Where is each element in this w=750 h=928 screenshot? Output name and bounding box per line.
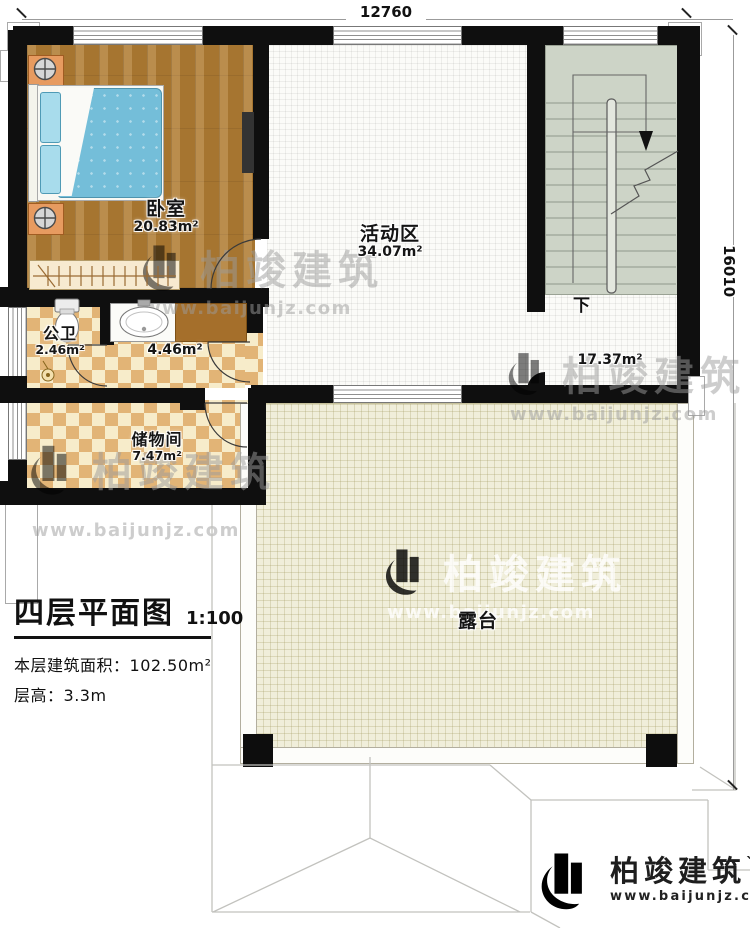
dimension-value-top: 12760 (346, 3, 426, 21)
room-label-storage: 储物间7.47m² (117, 431, 197, 463)
plan-title: 四层平面图 (14, 588, 174, 632)
terrace-parapet-bottom (240, 747, 694, 764)
brand-name: 柏竣建筑` (610, 856, 750, 886)
room-label-bath: 公卫2.46m² (20, 325, 100, 357)
brand-logo: 柏竣建筑` www.baijunjz.com (538, 848, 750, 912)
wall (8, 30, 27, 307)
room-label-bedroom: 卧室20.83m² (106, 199, 226, 236)
window (333, 26, 462, 45)
terrace-sliding-door (333, 385, 462, 403)
title-block: 四层平面图 1:100 本层建筑面积：102.50m² 层高：3.3m (14, 588, 243, 706)
plan-scale: 1:100 (186, 608, 243, 632)
tv (242, 112, 254, 173)
nightstand (28, 203, 64, 235)
dimension-line-right (733, 35, 734, 790)
vanity-counter (110, 303, 177, 342)
window (8, 397, 27, 460)
wall (462, 385, 700, 403)
dimension-value-right: 16010 (720, 245, 738, 297)
terrace-pillar-left (243, 734, 273, 767)
wall-pier (180, 388, 205, 410)
stairwell-floor (545, 45, 679, 295)
counter (175, 303, 247, 342)
title-underline (14, 636, 211, 639)
terrace-pillar-right (646, 734, 677, 767)
dimension-tick (681, 8, 692, 19)
stair-down-label: 下 (573, 291, 590, 316)
floor-plan-canvas: 卧室20.83m² 活动区34.07m² 公卫2.46m² 4.46m² 储物间… (0, 0, 750, 928)
dimension-tick (16, 8, 27, 19)
terrace-floor (255, 403, 679, 750)
window (563, 26, 658, 45)
pillow (40, 92, 61, 143)
wall (677, 26, 700, 403)
brand-url: www.baijunjz.com (610, 889, 750, 904)
room-label-corridor: 4.46m² (135, 343, 215, 359)
floor-height-line: 层高：3.3m (14, 682, 243, 706)
wall (462, 26, 563, 45)
wall (253, 26, 269, 239)
wardrobe (29, 260, 180, 290)
exterior-step-box (688, 376, 705, 416)
doorway-floor (245, 333, 263, 385)
wall (245, 307, 263, 333)
pillow (40, 145, 61, 194)
window (73, 26, 203, 45)
terrace-parapet-right (677, 403, 694, 764)
wall (8, 488, 253, 505)
nightstand (28, 55, 64, 86)
wall (527, 26, 545, 312)
room-label-activity: 活动区34.07m² (330, 224, 450, 261)
room-label-terrace: 露台 (438, 611, 518, 632)
wall (0, 388, 205, 403)
dimension-tick (727, 25, 738, 36)
room-label-hall: 17.37m² (568, 353, 652, 369)
brand-logo-icon (538, 848, 602, 912)
floor-area-line: 本层建筑面积：102.50m² (14, 652, 243, 676)
